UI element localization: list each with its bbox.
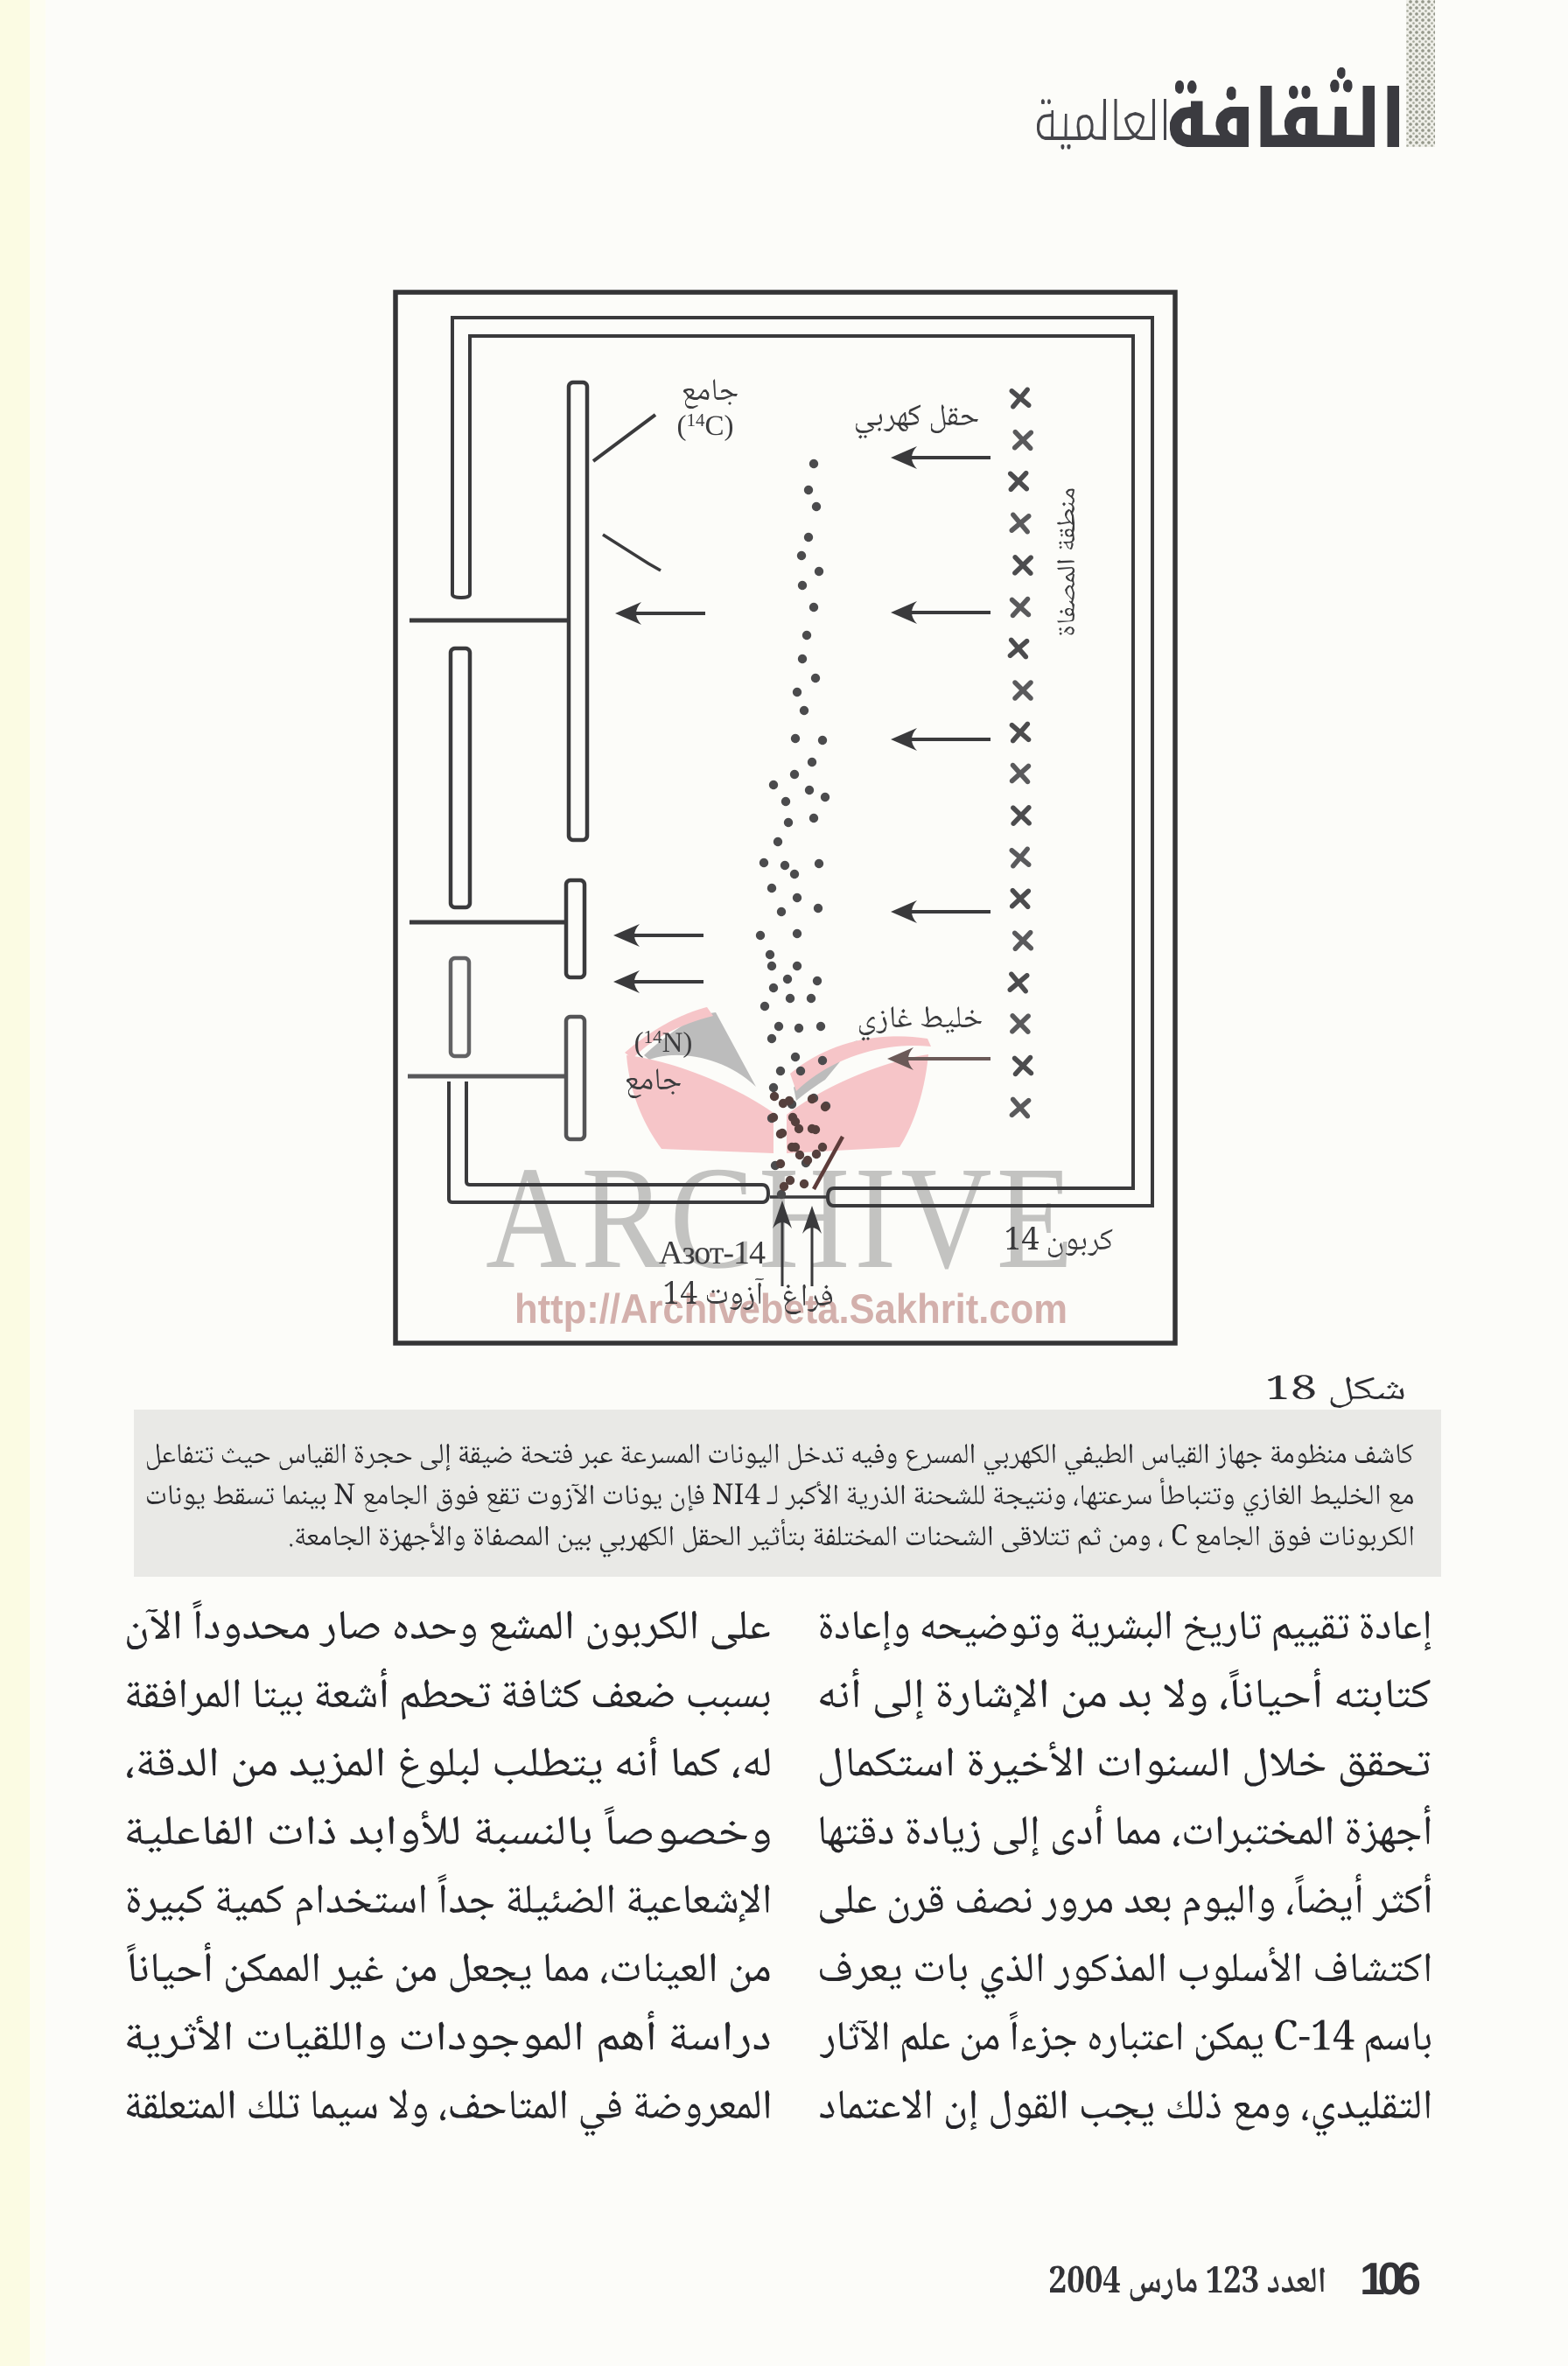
svg-text:Азот-14: Азот-14 — [659, 1235, 766, 1271]
svg-text:106: 106 — [1360, 2254, 1421, 2305]
svg-text:(14N): (14N) — [634, 1026, 693, 1059]
svg-text:(14C): (14C) — [677, 409, 734, 442]
